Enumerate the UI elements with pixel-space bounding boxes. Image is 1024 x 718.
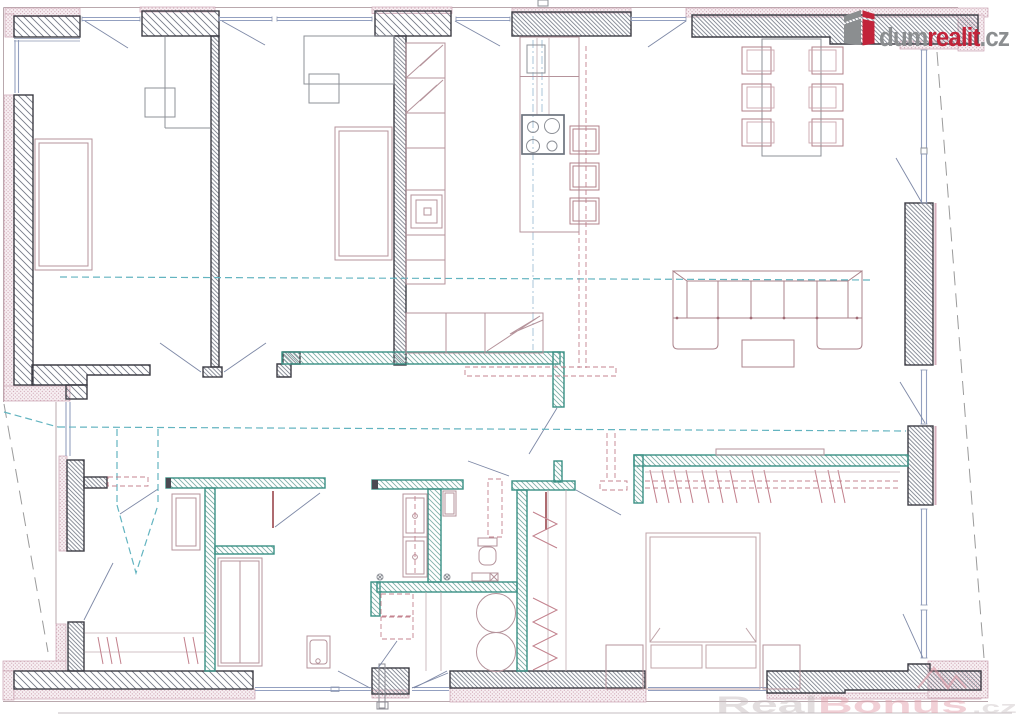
svg-text:RealBonus: RealBonus: [716, 692, 968, 718]
svg-text:.cz: .cz: [972, 698, 1017, 717]
svg-text:dumrealit.cz: dumrealit.cz: [879, 24, 1009, 52]
